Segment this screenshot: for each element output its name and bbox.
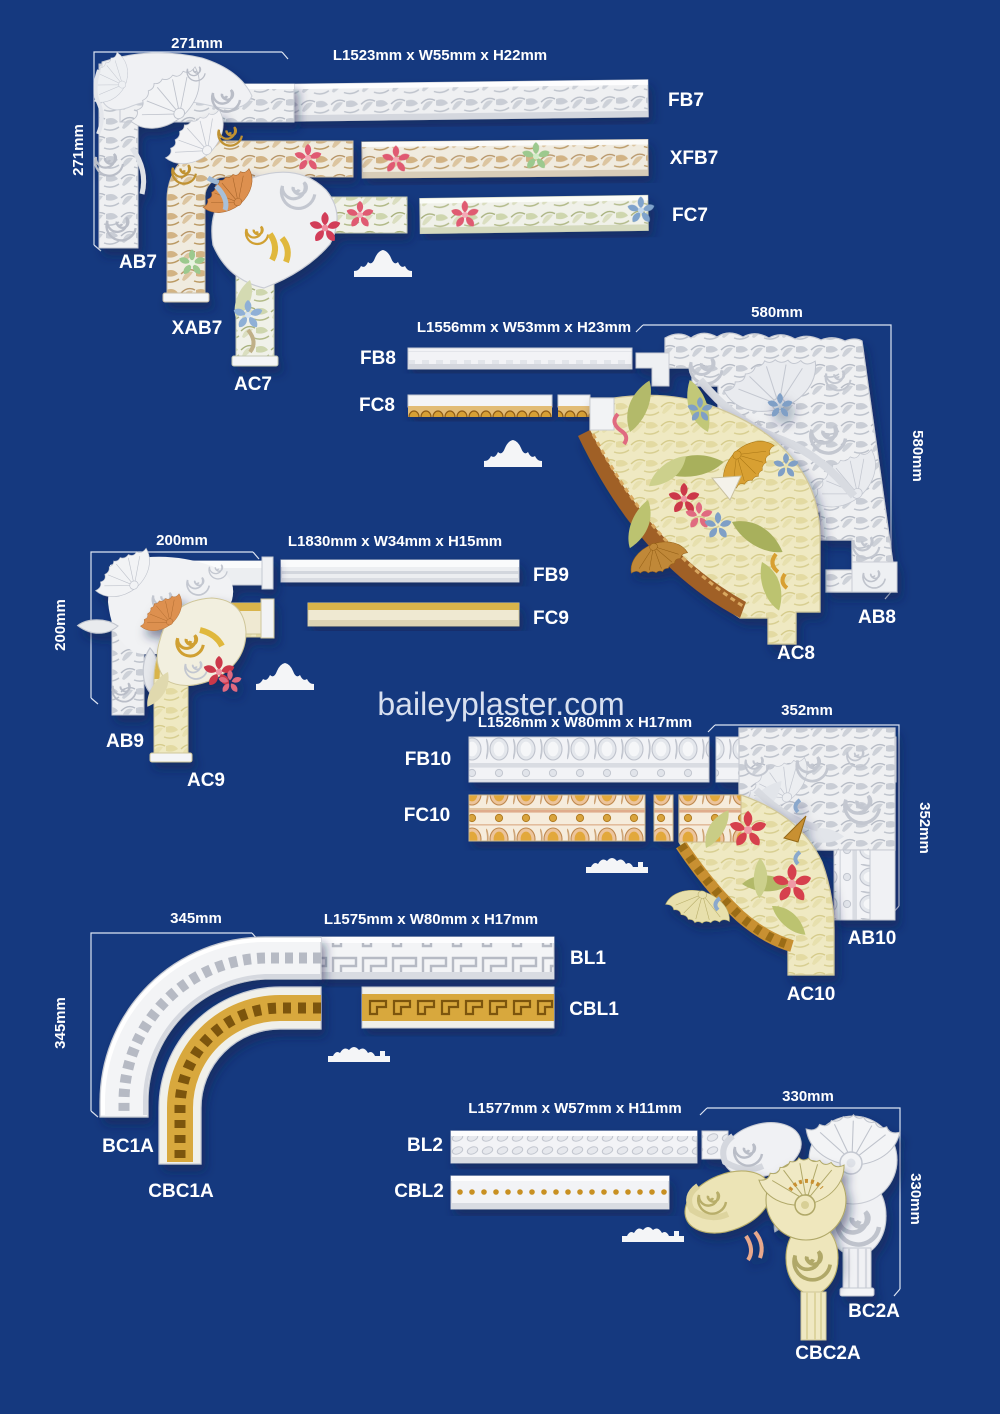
svg-text:580mm: 580mm [909,430,926,482]
svg-text:FB9: FB9 [533,565,569,586]
svg-text:AC9: AC9 [187,770,225,791]
svg-text:CBC2A: CBC2A [795,1343,861,1364]
svg-text:CBC1A: CBC1A [148,1181,214,1202]
svg-text:AB9: AB9 [106,731,144,752]
svg-text:L1556mm x W53mm x H23mm: L1556mm x W53mm x H23mm [417,319,631,336]
svg-text:580mm: 580mm [751,304,803,321]
svg-text:L1575mm x W80mm x H17mm: L1575mm x W80mm x H17mm [324,911,538,928]
svg-text:FC10: FC10 [404,805,450,826]
svg-text:AB8: AB8 [858,607,896,628]
svg-text:345mm: 345mm [170,910,222,927]
svg-text:BL1: BL1 [570,948,606,969]
svg-text:L1523mm x W55mm x H22mm: L1523mm x W55mm x H22mm [333,47,547,64]
svg-text:FB7: FB7 [668,90,704,111]
svg-text:XFB7: XFB7 [670,148,719,169]
svg-text:AB10: AB10 [848,928,897,949]
svg-text:L1526mm x W80mm x H17mm: L1526mm x W80mm x H17mm [478,714,692,731]
svg-text:200mm: 200mm [52,599,69,651]
svg-text:L1577mm x W57mm x H11mm: L1577mm x W57mm x H11mm [468,1100,681,1117]
svg-text:FC8: FC8 [359,395,395,416]
svg-text:AC7: AC7 [234,374,272,395]
svg-text:200mm: 200mm [156,532,208,549]
svg-text:BL2: BL2 [407,1135,443,1156]
svg-text:FB8: FB8 [360,348,396,369]
svg-text:BC2A: BC2A [848,1301,900,1322]
svg-text:AB7: AB7 [119,252,157,273]
svg-text:FC7: FC7 [672,205,708,226]
svg-text:352mm: 352mm [781,702,833,719]
svg-text:271mm: 271mm [70,124,87,176]
svg-text:345mm: 345mm [52,997,69,1049]
svg-text:352mm: 352mm [916,802,933,854]
svg-text:AC10: AC10 [787,984,836,1005]
svg-text:CBL2: CBL2 [394,1181,444,1202]
svg-text:AC8: AC8 [777,643,815,664]
svg-text:FC9: FC9 [533,608,569,629]
svg-text:BC1A: BC1A [102,1136,154,1157]
svg-text:CBL1: CBL1 [569,999,619,1020]
svg-text:330mm: 330mm [782,1088,834,1105]
svg-text:L1830mm x W34mm x H15mm: L1830mm x W34mm x H15mm [288,533,502,550]
svg-text:271mm: 271mm [171,35,223,52]
svg-text:XAB7: XAB7 [172,318,223,339]
svg-text:FB10: FB10 [405,749,451,770]
svg-text:330mm: 330mm [907,1173,924,1225]
